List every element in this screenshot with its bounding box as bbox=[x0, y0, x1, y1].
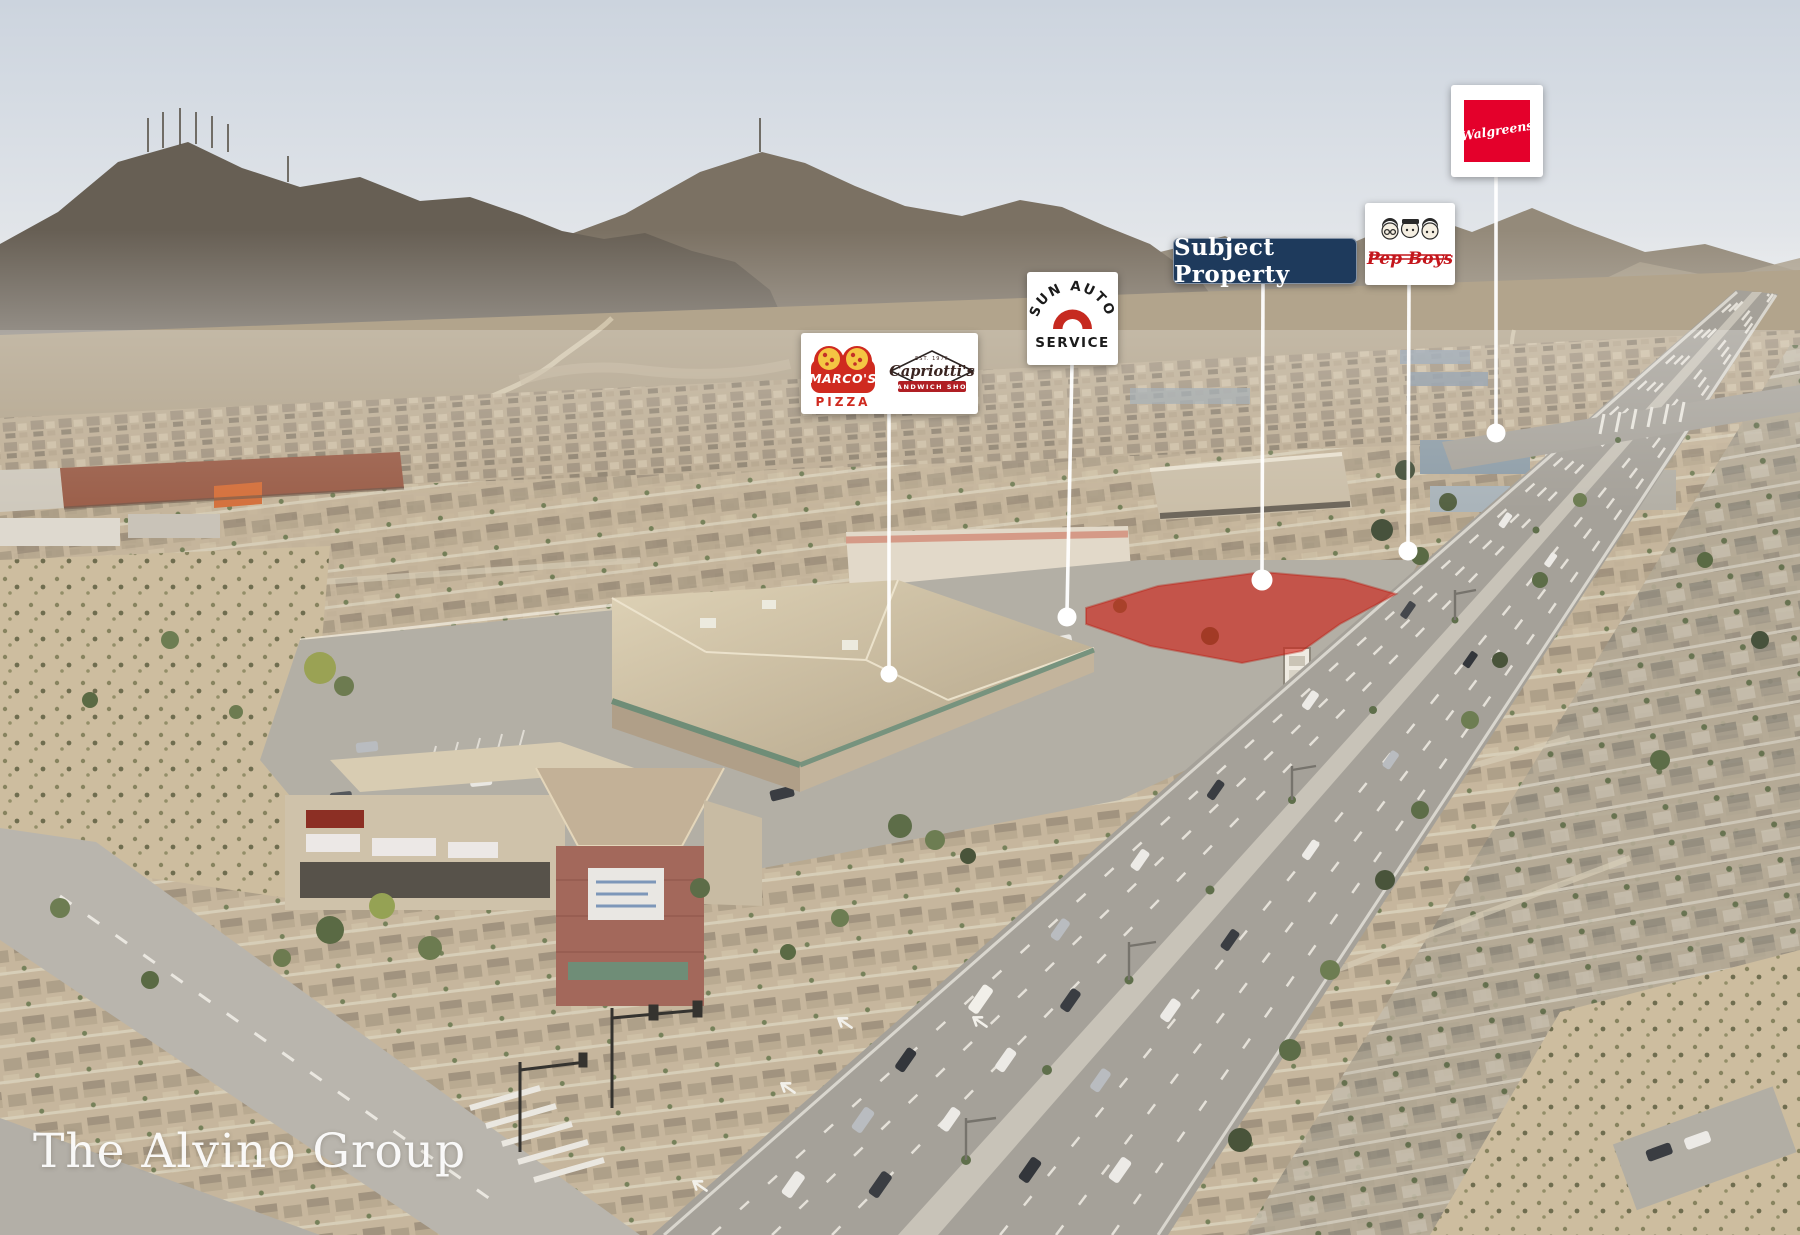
subject-property-highlight bbox=[1086, 572, 1396, 663]
svg-text:Capriotti's: Capriotti's bbox=[889, 363, 974, 380]
marcos-pizza-logo: MARCO'S PIZZA bbox=[809, 346, 877, 409]
pep-boys-label: Pep Boys bbox=[1365, 203, 1455, 285]
marcos-capriottis-label: MARCO'S PIZZA EST. 1976 Capriotti's SAND… bbox=[801, 333, 978, 414]
sun-auto-label: SUN AUTO SERVICE bbox=[1027, 272, 1118, 365]
subject-property-label: Subject Property bbox=[1173, 238, 1357, 284]
annotation-overlay bbox=[0, 0, 1800, 1235]
subject-property-text: Subject Property bbox=[1174, 234, 1356, 288]
svg-text:SANDWICH SHOP: SANDWICH SHOP bbox=[891, 383, 974, 391]
watermark-text: The Alvino Group bbox=[33, 1124, 466, 1179]
walgreens-logo: Walgreens bbox=[1464, 100, 1530, 162]
svg-text:MARCO'S: MARCO'S bbox=[809, 371, 877, 386]
svg-text:Pep Boys: Pep Boys bbox=[1366, 249, 1454, 269]
pep-boys-logo: Pep Boys bbox=[1365, 203, 1455, 285]
sun-auto-logo: SUN AUTO SERVICE bbox=[1027, 272, 1118, 365]
svg-text:PIZZA: PIZZA bbox=[816, 395, 871, 409]
capriottis-logo: EST. 1976 Capriotti's SANDWICH SHOP bbox=[889, 351, 974, 392]
svg-text:SERVICE: SERVICE bbox=[1035, 335, 1109, 351]
walgreens-label: Walgreens bbox=[1451, 85, 1543, 177]
svg-text:EST. 1976: EST. 1976 bbox=[915, 356, 949, 362]
aerial-marketing-image: MARCO'S PIZZA EST. 1976 Capriotti's SAND… bbox=[0, 0, 1800, 1235]
